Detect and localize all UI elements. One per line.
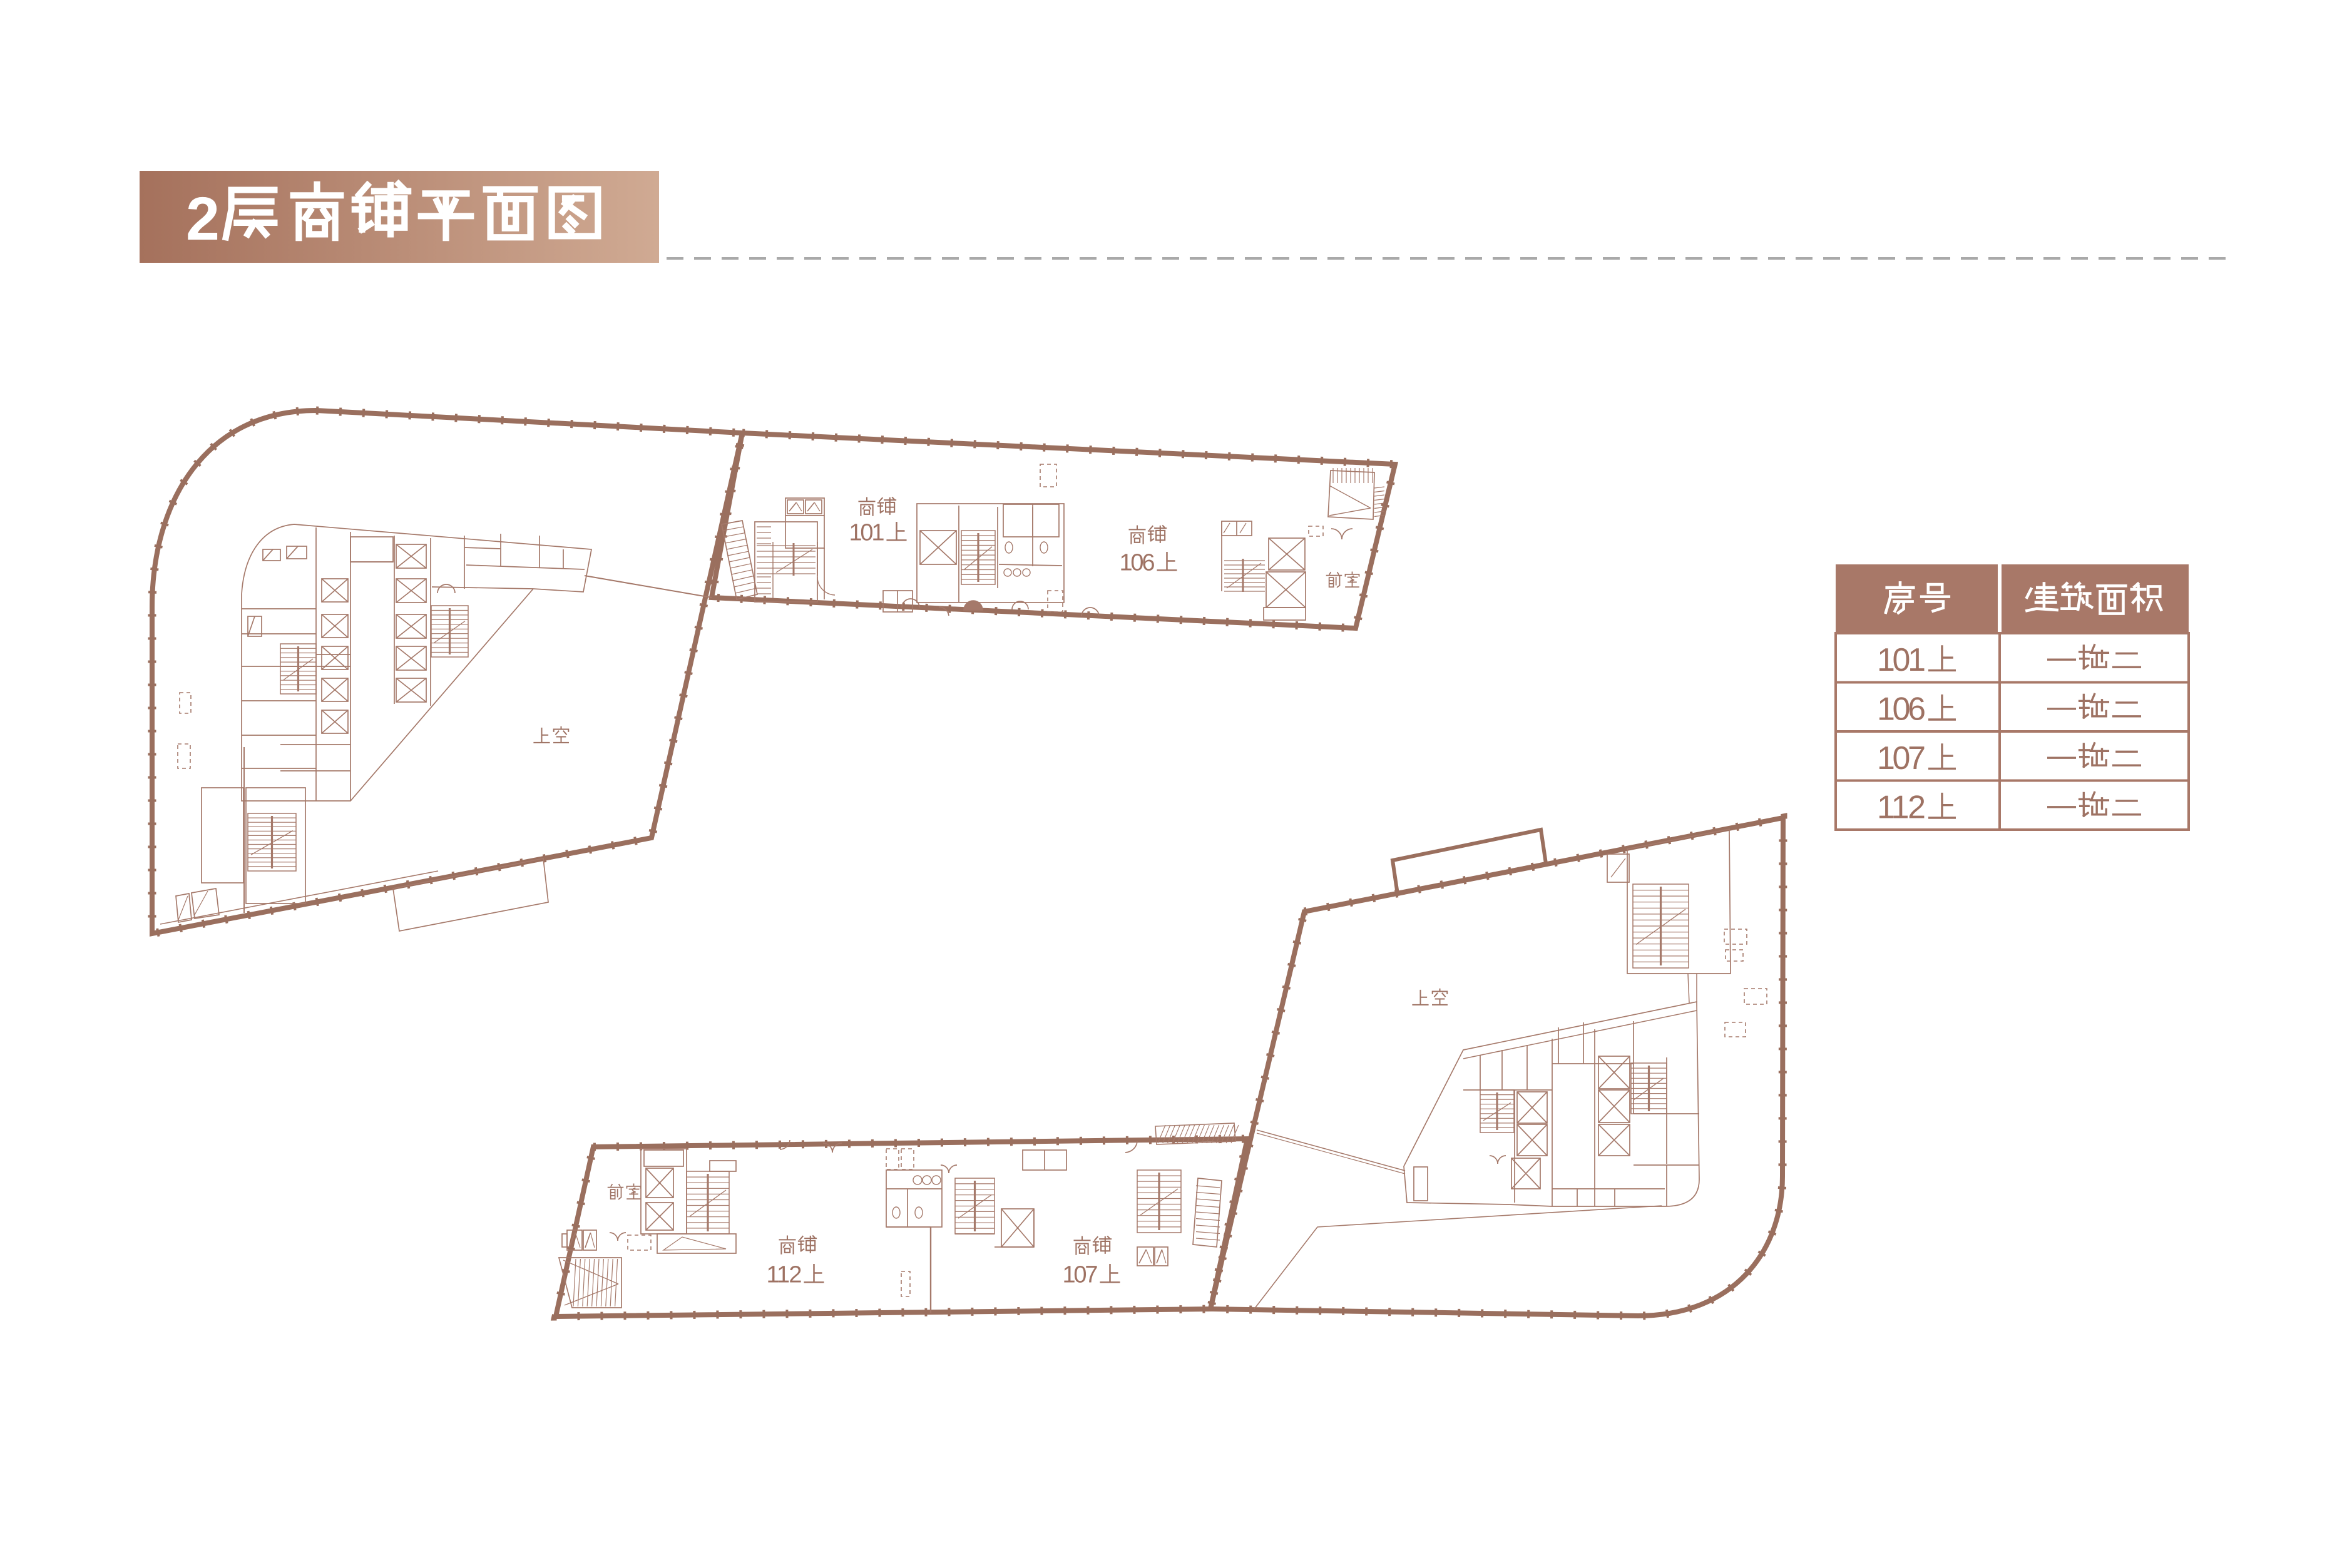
svg-text:107: 107 (1877, 740, 1926, 776)
svg-text:106: 106 (1877, 691, 1926, 728)
svg-text:112: 112 (767, 1262, 802, 1288)
svg-text:101: 101 (849, 520, 885, 546)
svg-text:101: 101 (1877, 642, 1926, 678)
svg-text:107: 107 (1063, 1262, 1098, 1288)
svg-text:2: 2 (186, 185, 220, 253)
svg-text:112: 112 (1877, 790, 1926, 826)
svg-text:106: 106 (1120, 550, 1155, 576)
